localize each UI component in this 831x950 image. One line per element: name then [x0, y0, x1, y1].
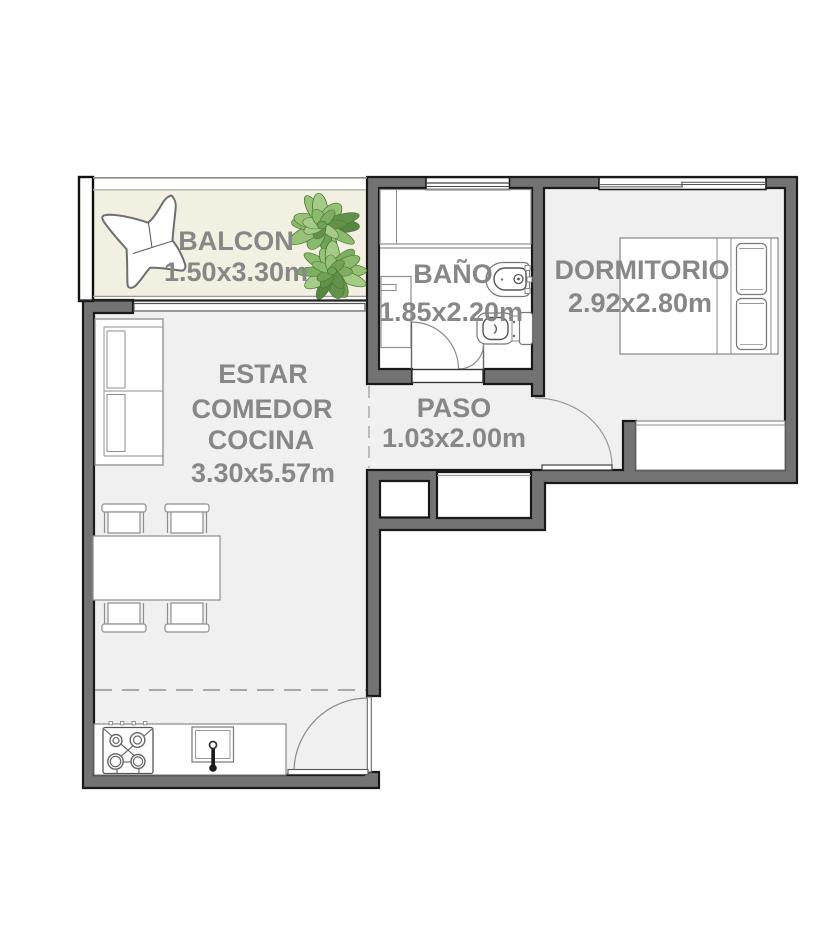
- svg-text:BALCON: BALCON: [178, 226, 294, 256]
- svg-text:ESTAR: ESTAR: [218, 359, 308, 389]
- svg-text:DORMITORIO: DORMITORIO: [555, 255, 730, 285]
- svg-text:1.03x2.00m: 1.03x2.00m: [382, 423, 526, 453]
- svg-text:3.30x5.57m: 3.30x5.57m: [191, 458, 335, 488]
- svg-text:2.92x2.80m: 2.92x2.80m: [568, 288, 712, 318]
- svg-text:1.85x2.20m: 1.85x2.20m: [379, 297, 523, 327]
- svg-text:BAÑO: BAÑO: [413, 258, 493, 289]
- svg-text:COMEDOR: COMEDOR: [192, 394, 333, 424]
- svg-text:COCINA: COCINA: [208, 425, 315, 455]
- svg-text:1.50x3.30m: 1.50x3.30m: [164, 257, 308, 287]
- svg-text:PASO: PASO: [417, 393, 492, 423]
